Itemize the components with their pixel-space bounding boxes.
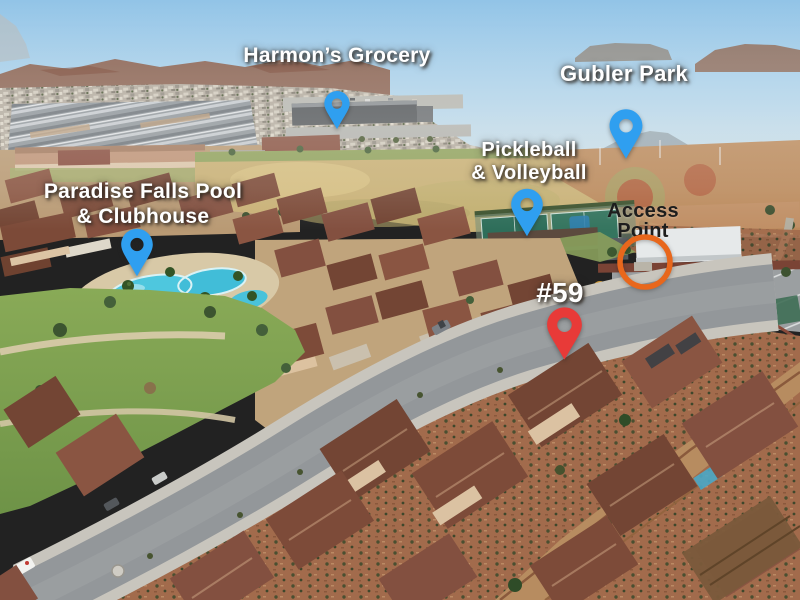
map-pin-pickleball-icon [509,185,545,240]
map-pin-harmons-grocery-icon [322,90,352,130]
map-pin-paradise-falls-icon [119,227,155,278]
label-paradise-line2: & Clubhouse [44,205,242,229]
map-pin-gubler-park-icon [607,108,645,160]
annotated-aerial-photo: Harmon’s Grocery Gubler Park Pickleball … [0,0,800,600]
access-point-circle-icon [616,233,674,291]
label-gubler-park: Gubler Park [560,62,688,87]
label-paradise-falls: Paradise Falls Pool & Clubhouse [44,180,242,228]
label-pickleball-line1: Pickleball [471,139,587,161]
label-harmons-grocery: Harmon’s Grocery [243,44,430,68]
aerial-photo-scene [0,0,800,600]
label-pickleball-line2: & Volleyball [471,162,587,184]
label-pickleball-volleyball: Pickleball & Volleyball [471,139,587,185]
label-access-line1: Access [607,201,679,221]
label-paradise-line1: Paradise Falls Pool [44,180,242,204]
label-unit-59: #59 [536,277,584,308]
map-pin-unit-59-icon [541,306,588,361]
